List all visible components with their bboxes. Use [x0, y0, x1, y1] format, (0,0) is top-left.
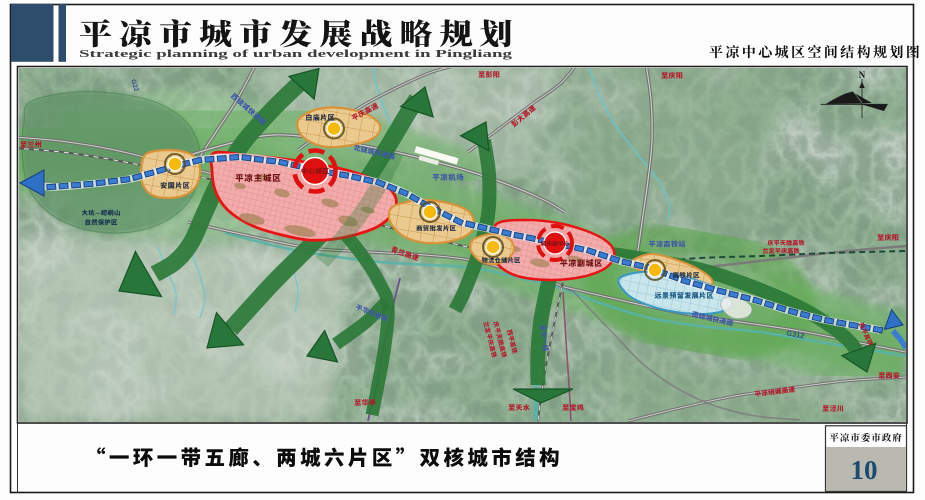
- svg-text:10: 10: [851, 455, 878, 485]
- svg-text:Strategic planning of urban de: Strategic planning of urban development …: [79, 48, 513, 60]
- svg-text:N: N: [859, 70, 866, 80]
